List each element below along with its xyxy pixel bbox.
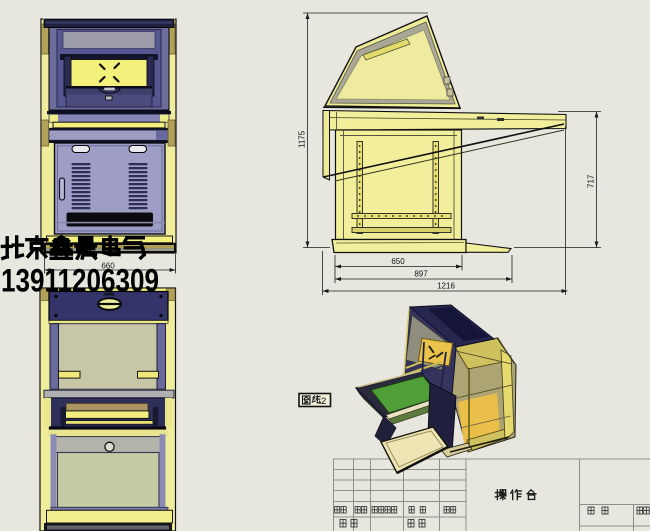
svg-text:13911206309: 13911206309 [1, 263, 159, 299]
svg-text:650: 650 [391, 257, 405, 266]
svg-text:897: 897 [414, 270, 428, 279]
svg-text:2: 2 [321, 396, 326, 407]
svg-text:1175: 1175 [298, 130, 307, 148]
svg-text:717: 717 [587, 174, 596, 188]
svg-text:1216: 1216 [437, 282, 455, 291]
